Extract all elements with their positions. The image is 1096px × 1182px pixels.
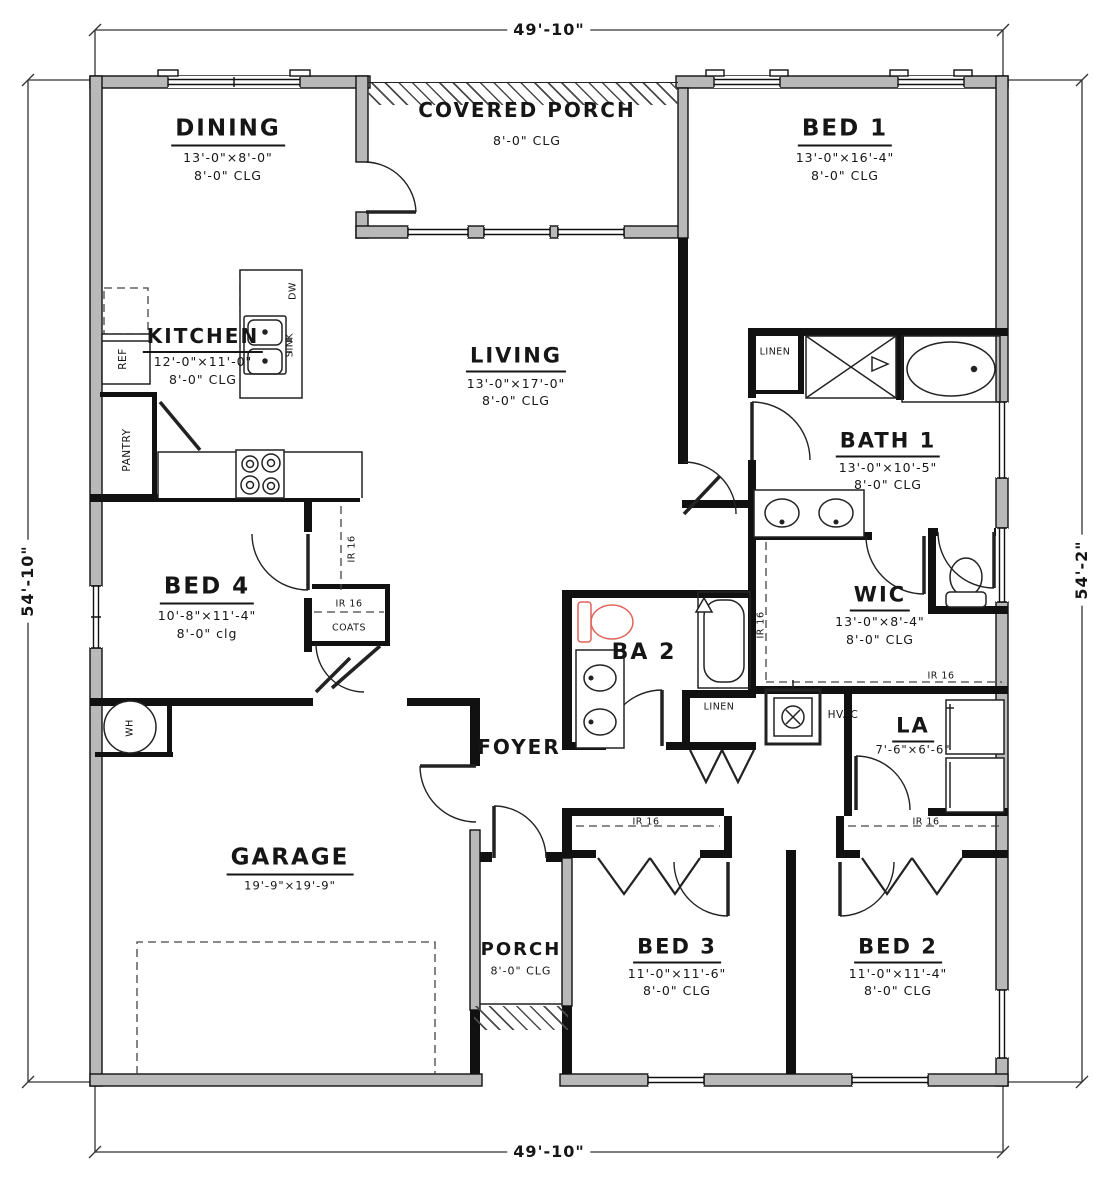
vanity-bath1 bbox=[754, 490, 864, 537]
window-bath1-right bbox=[996, 402, 1008, 478]
water-heater-label: WH bbox=[125, 719, 135, 737]
shower-bath1 bbox=[806, 336, 896, 398]
door-toilet-room bbox=[938, 532, 994, 588]
ir16-coats-label: IR 16 bbox=[335, 599, 362, 609]
room-label-bath1: BATH 1 bbox=[836, 431, 940, 452]
door-dining-porch bbox=[366, 162, 416, 212]
door-front-entry bbox=[494, 806, 546, 858]
window-bed2-right bbox=[996, 990, 1008, 1058]
room-size-bed2: 11'-0"×11'-4" bbox=[849, 968, 948, 981]
window-bed4-left bbox=[90, 586, 102, 648]
windows-living-porch-wall bbox=[408, 226, 624, 238]
room-size-bed4: 10'-8"×11'-4" bbox=[158, 610, 257, 623]
door-garage-entry bbox=[420, 766, 476, 822]
room-label-foyer: FOYER bbox=[473, 737, 565, 757]
door-la bbox=[856, 756, 910, 810]
tub-ba2 bbox=[696, 592, 750, 688]
window-bed1-top-left bbox=[706, 70, 788, 88]
linen-ba2-label: LINEN bbox=[704, 702, 735, 712]
door-bed2 bbox=[840, 862, 894, 916]
room-label-garage: GARAGE bbox=[227, 847, 354, 870]
floor-plan-canvas: 49'-10" 49'-10" 54'-10" 54'-2" DINING 13… bbox=[0, 0, 1096, 1182]
door-bed4 bbox=[252, 534, 308, 590]
room-ceiling-bed4: 8'-0" clg bbox=[177, 628, 238, 641]
refrigerator-label: REF bbox=[118, 348, 129, 369]
room-label-bed4: BED 4 bbox=[160, 576, 254, 599]
linen-bath1-label: LINEN bbox=[760, 347, 791, 357]
window-toilet-room-right bbox=[996, 528, 1008, 602]
dishwasher-label: DW bbox=[288, 282, 298, 300]
room-label-ba2: BA 2 bbox=[608, 642, 681, 664]
sink-label: SINK bbox=[285, 333, 295, 357]
room-label-covered-porch: COVERED PORCH bbox=[414, 100, 639, 120]
cabinet-dashed bbox=[104, 288, 148, 334]
room-label-dining: DINING bbox=[171, 118, 285, 141]
toilet-bath1 bbox=[946, 558, 986, 607]
dimension-top: 49'-10" bbox=[507, 22, 590, 38]
garage-door-dashed bbox=[137, 942, 435, 1074]
door-bath1 bbox=[752, 402, 810, 460]
window-bed2-bottom bbox=[852, 1074, 928, 1086]
room-size-living: 13'-0"×17'-0" bbox=[467, 378, 566, 391]
ir16-bed2-closet-label: IR 16 bbox=[912, 817, 939, 827]
dimension-right: 54'-2" bbox=[1074, 534, 1090, 605]
room-size-bath1: 13'-0"×10'-5" bbox=[839, 462, 938, 475]
room-label-bed2: BED 2 bbox=[854, 937, 942, 958]
dimension-left: 54'-10" bbox=[20, 539, 36, 622]
room-label-living: LIVING bbox=[466, 346, 566, 367]
washer-dryer bbox=[946, 700, 1004, 812]
room-ceiling-bed2: 8'-0" CLG bbox=[864, 985, 932, 998]
room-ceiling-bed1: 8'-0" CLG bbox=[811, 170, 879, 183]
room-label-bed1: BED 1 bbox=[798, 118, 892, 141]
ir16-bed3-closet-label: IR 16 bbox=[632, 817, 659, 827]
tub-bath1 bbox=[902, 336, 1000, 402]
dimension-bottom: 49'-10" bbox=[507, 1144, 590, 1160]
room-label-porch: PORCH bbox=[477, 941, 566, 959]
room-ceiling-covered-porch: 8'-0" CLG bbox=[493, 135, 561, 148]
bifold-bed2-closet bbox=[862, 858, 962, 894]
front-porch-step-hatch bbox=[474, 1006, 568, 1030]
hvac-label: HVAC bbox=[828, 710, 859, 721]
pantry-label: PANTRY bbox=[122, 428, 133, 471]
room-size-bed3: 11'-0"×11'-6" bbox=[628, 968, 727, 981]
door-bed3 bbox=[674, 862, 728, 916]
room-size-dining: 13'-0"×8'-0" bbox=[183, 152, 273, 165]
hvac-unit bbox=[766, 680, 820, 744]
room-ceiling-living: 8'-0" CLG bbox=[482, 395, 550, 408]
window-bed3-bottom bbox=[648, 1074, 704, 1086]
window-dining-top bbox=[158, 70, 310, 88]
room-label-la: LA bbox=[892, 716, 934, 737]
door-pantry bbox=[160, 402, 200, 450]
toilet-ba2 bbox=[578, 602, 633, 642]
room-size-kitchen: 12'-0"×11'-0" bbox=[154, 356, 253, 369]
room-ceiling-dining: 8'-0" CLG bbox=[194, 170, 262, 183]
room-size-la: 7'-6"×6'-6" bbox=[875, 744, 950, 756]
ir16-wic-left-label: IR 16 bbox=[756, 611, 766, 638]
room-label-bed3: BED 3 bbox=[633, 937, 721, 958]
room-size-bed1: 13'-0"×16'-4" bbox=[796, 152, 895, 165]
coats-label: COATS bbox=[332, 623, 366, 633]
bifold-linen-ba2 bbox=[690, 750, 754, 782]
room-label-kitchen: KITCHEN bbox=[143, 326, 263, 346]
stove bbox=[236, 450, 284, 498]
room-size-wic: 13'-0"×8'-4" bbox=[835, 616, 925, 629]
ir16-hall-label: IR 16 bbox=[347, 535, 357, 562]
ir16-wic-bottom-label: IR 16 bbox=[927, 671, 954, 681]
room-ceiling-bath1: 8'-0" CLG bbox=[854, 479, 922, 492]
room-ceiling-bed3: 8'-0" CLG bbox=[643, 985, 711, 998]
room-label-wic: WIC bbox=[850, 585, 910, 606]
room-ceiling-wic: 8'-0" CLG bbox=[846, 634, 914, 647]
kitchen-counter bbox=[158, 450, 362, 498]
room-ceiling-kitchen: 8'-0" CLG bbox=[169, 374, 237, 387]
room-ceiling-porch: 8'-0" CLG bbox=[491, 966, 552, 977]
room-size-garage: 19'-9"×19'-9" bbox=[244, 880, 336, 892]
window-bed1-top-right bbox=[890, 70, 972, 88]
bifold-bed3-closet bbox=[598, 858, 700, 894]
